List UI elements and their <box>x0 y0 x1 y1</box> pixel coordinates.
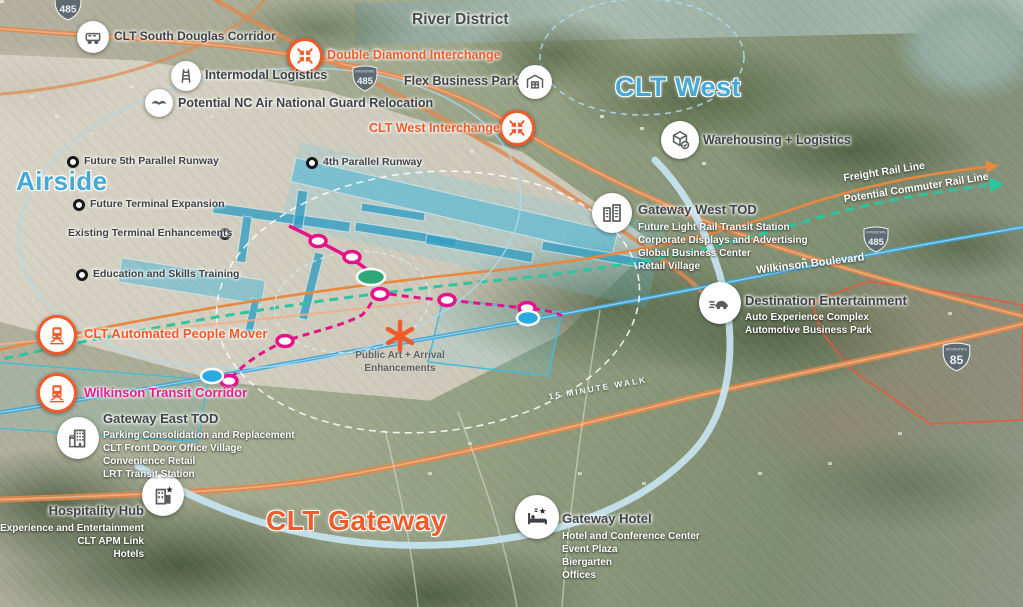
air-guard-site-highlight <box>118 258 265 304</box>
gateway-hotel-item: Event Plaza <box>562 543 700 556</box>
label-double-diamond: Double Diamond Interchange <box>327 48 501 62</box>
region-title-airside: Airside <box>16 166 108 197</box>
clt-development-plan-map: INTERSTATE485 INTERSTATE485 INTERSTATE48… <box>0 0 1023 607</box>
label-river-district: River District <box>412 11 508 29</box>
label-wilkinson-transit: Wilkinson Transit Corridor <box>84 385 247 400</box>
apm-tram-icon <box>37 315 77 355</box>
gateway-east-item: Convenience Retail <box>103 455 295 468</box>
label-south-douglas: CLT South Douglas Corridor <box>114 29 276 43</box>
label-warehousing: Warehousing + Logistics <box>703 133 851 147</box>
air-guard-wings-icon <box>145 89 173 117</box>
hospitality-item: Hotels <box>0 548 144 561</box>
label-education: Education and Skills Training <box>93 268 239 280</box>
bullet-education <box>76 269 88 281</box>
svg-text:485: 485 <box>60 4 77 15</box>
wilkinson-transit-tram-icon <box>37 373 77 413</box>
svg-text:485: 485 <box>868 237 885 248</box>
gateway-west-item: Future Light Rail Transit Station <box>638 221 808 234</box>
gateway-east-item: LRT Transit Station <box>103 468 295 481</box>
clt-west-interchange-icon <box>499 110 535 146</box>
poi-gateway-east-tod: Gateway East TOD Parking Consolidation a… <box>103 411 295 481</box>
gateway-hotel-item: Biergarten <box>562 556 700 569</box>
public-art-line2: Enhancements <box>325 362 475 375</box>
label-intermodal: Intermodal Logistics <box>205 68 327 82</box>
poi-destination-entertainment: Destination Entertainment Auto Experienc… <box>745 293 907 337</box>
gateway-east-item: Parking Consolidation and Replacement <box>103 429 295 442</box>
gateway-east-item: CLT Front Door Office Village <box>103 442 295 455</box>
terminal-station-marker <box>357 269 385 285</box>
svg-text:INTERSTATE: INTERSTATE <box>58 0 79 1</box>
bullet-runway4 <box>306 157 318 169</box>
label-runway4: 4th Parallel Runway <box>323 156 422 168</box>
label-destination-title: Destination Entertainment <box>745 293 907 308</box>
region-title-clt-west: CLT West <box>615 72 741 103</box>
gateway-hotel-item: Offices <box>562 569 700 582</box>
poi-gateway-hotel: Gateway Hotel Hotel and Conference Cente… <box>562 511 700 582</box>
i85-shield: INTERSTATE85 <box>941 341 972 372</box>
bullet-terminal-expansion <box>73 199 85 211</box>
label-terminal-enhancements: Existing Terminal Enhancements <box>68 227 232 239</box>
svg-text:85: 85 <box>950 353 964 367</box>
label-gateway-east-title: Gateway East TOD <box>103 411 295 426</box>
i485-shield-north: INTERSTATE485 <box>351 64 379 92</box>
auto-experience-car-icon <box>699 282 741 324</box>
i485-shield-topleft: INTERSTATE485 <box>53 0 83 21</box>
truck-corridor-icon <box>77 21 109 53</box>
gateway-west-item: Global Business Center <box>638 247 808 260</box>
label-terminal-expansion: Future Terminal Expansion <box>90 198 225 210</box>
gateway-west-item: Corporate Displays and Advertising <box>638 234 808 247</box>
flex-business-park-icon <box>518 65 552 99</box>
i485-shield-east: INTERSTATE485 <box>862 225 890 253</box>
svg-text:485: 485 <box>357 76 374 87</box>
label-west-interchange: CLT West Interchange <box>369 121 500 135</box>
destination-item: Automotive Business Park <box>745 324 907 337</box>
label-air-guard: Potential NC Air National Guard Relocati… <box>178 96 433 110</box>
warehousing-box-icon <box>661 121 699 159</box>
label-gateway-hotel-title: Gateway Hotel <box>562 511 700 526</box>
label-gateway-west-title: Gateway West TOD <box>638 202 808 217</box>
poi-hospitality-hub: Hospitality Hub Experience and Entertain… <box>0 503 144 561</box>
svg-text:INTERSTATE: INTERSTATE <box>866 231 885 235</box>
svg-text:INTERSTATE: INTERSTATE <box>355 70 374 74</box>
label-hospitality-title: Hospitality Hub <box>0 503 144 518</box>
rail-tracks-icon <box>171 61 201 91</box>
gateway-west-buildings-icon <box>592 193 632 233</box>
gateway-east-office-icon <box>57 417 99 459</box>
destination-item: Auto Experience Complex <box>745 311 907 324</box>
public-art-line1: Public Art + Arrival <box>325 349 475 362</box>
gateway-hotel-item: Hotel and Conference Center <box>562 530 700 543</box>
label-apm: CLT Automated People Mover <box>84 326 267 341</box>
gateway-hotel-bed-icon <box>515 495 559 539</box>
region-title-clt-gateway: CLT Gateway <box>266 505 447 537</box>
label-flex-park: Flex Business Park <box>404 74 519 88</box>
svg-text:INTERSTATE: INTERSTATE <box>946 347 968 351</box>
label-public-art: Public Art + Arrival Enhancements <box>325 349 475 375</box>
hospitality-item: CLT APM Link <box>0 535 144 548</box>
hospitality-item: Experience and Entertainment <box>0 522 144 535</box>
